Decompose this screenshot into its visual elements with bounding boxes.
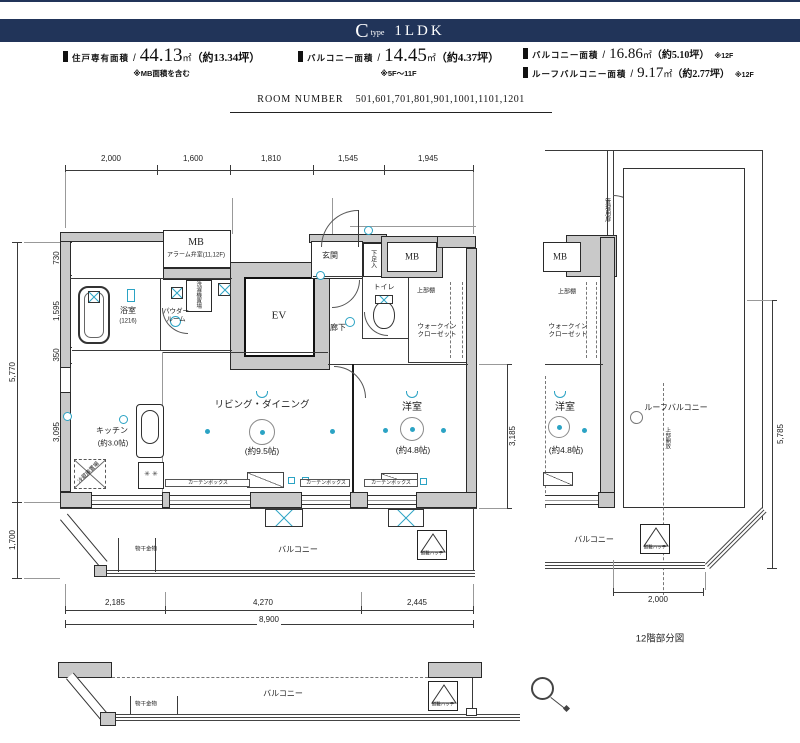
window: [92, 495, 162, 505]
dimension-tick: [65, 606, 66, 614]
dim-top-1945: 1,945: [418, 154, 438, 164]
dimension-tick: [473, 620, 474, 628]
label-living-size: (約9.5帖): [245, 446, 279, 456]
wall-segment: [428, 662, 482, 678]
dim-left-3095: 3,095: [52, 422, 62, 442]
extension-line: [24, 242, 60, 243]
shower-icon: [127, 289, 135, 302]
window: [545, 495, 598, 505]
toilet: [373, 301, 395, 329]
dimension-tick: [767, 568, 777, 569]
tv-board: [247, 472, 284, 488]
dimension-tick: [384, 165, 385, 175]
label-genkan: 玄関: [322, 251, 338, 261]
wall-segment: [60, 492, 92, 508]
balcony-railing: [116, 714, 520, 721]
dimension-line: [65, 610, 473, 611]
ceiling-light-symbol: [400, 417, 424, 441]
wall-fixture-icon: [63, 412, 72, 421]
ac-unit-box: [388, 509, 424, 527]
label-hatch-1: 避難ハッチ: [421, 550, 444, 555]
label-wic-1: ウォークイン クローゼット: [418, 323, 457, 339]
window: [60, 368, 71, 392]
intercom-icon: [364, 226, 373, 235]
dimension-tick: [12, 242, 22, 243]
north-arrow-head: [563, 705, 570, 712]
wall-segment: [437, 236, 476, 248]
balcony-railing: [545, 562, 705, 569]
label-wic-2: ウォークイン クローゼット: [549, 323, 588, 339]
label-toilet: トイレ: [374, 284, 395, 292]
label-mb-right: MB: [405, 252, 419, 263]
label-mb-rightplan: MB: [553, 252, 567, 263]
dim-top-1600: 1,600: [183, 154, 203, 164]
label-curtain-box-1: カーテンボックス: [188, 480, 228, 486]
dim-bottom-2185: 2,185: [105, 598, 125, 608]
ceiling-light-symbol: [548, 416, 570, 438]
common-corridor-line: [232, 198, 233, 234]
extension-line: [479, 364, 507, 365]
dim-left-350: 350: [52, 348, 62, 361]
dimension-tick: [12, 502, 22, 503]
floorplan-page: Ctype1LDK 住戸専有面積/44.13㎡（約13.34坪） ※MB面積を含…: [0, 0, 800, 743]
laundry-pole-post: [118, 538, 119, 572]
dim-left-5770: 5,770: [8, 362, 18, 382]
balcony-side-line: [473, 508, 474, 574]
plan-type-banner: Ctype1LDK: [0, 19, 800, 42]
dim-bottom-8900: 8,900: [257, 615, 281, 625]
dimension-tick: [12, 578, 22, 579]
dimension-tick: [361, 606, 362, 614]
kitchen-light-icon: [119, 415, 128, 424]
building-outline: [545, 150, 762, 151]
area-balcony-note: ※5F～11F: [298, 68, 499, 79]
outlet-box: [420, 478, 427, 485]
laundry-pole-post: [155, 538, 156, 572]
dimension-line: [65, 170, 473, 171]
label-powder-room: パウダー ルーム: [163, 308, 189, 324]
wall-segment: [60, 232, 164, 242]
label-roof-balcony: ルーフバルコニー: [644, 403, 707, 413]
area-summary-row: 住戸専有面積/44.13㎡（約13.34坪） ※MB面積を含む バルコニー面積/…: [0, 45, 800, 89]
label-curtain-box-3: カーテンボックス: [371, 480, 411, 486]
area-bullet-icon: [63, 51, 68, 62]
door-leaf: [358, 210, 359, 247]
top-border-line: [0, 0, 800, 2]
label-kitchen-size: (約3.0帖): [98, 439, 128, 448]
roof-drain-symbol: [630, 411, 643, 424]
label-balcony-main: バルコニー: [278, 545, 318, 555]
label-bedroom-2-size: (約4.8帖): [549, 445, 583, 455]
balcony-railing-diagonal: [705, 507, 767, 569]
interior-wall-line: [160, 278, 161, 350]
ac-unit-box: [265, 509, 303, 527]
wall-line: [607, 150, 608, 237]
room-number-label: ROOM NUMBER: [257, 94, 343, 105]
label-living-dining: リビング・ダイニング: [214, 399, 309, 410]
parapet-end-block: [100, 712, 116, 726]
cabinet-icon: [171, 287, 183, 299]
interior-wall-line: [72, 350, 232, 351]
downlight-dot: [582, 428, 587, 433]
label-shelf-1: 上部棚: [417, 288, 435, 295]
label-kitchen: キッチン: [96, 426, 128, 436]
parapet-end-block: [94, 565, 107, 577]
dim-top-1810: 1,810: [261, 154, 281, 164]
label-laundry: 洗濯機置場: [195, 281, 202, 309]
label-hatch-3: 避難ハッチ: [432, 701, 455, 706]
window: [302, 495, 350, 505]
closet-hanger-dashed-line: [586, 282, 587, 358]
stove-burner-icons: ✳ ✳: [144, 471, 158, 479]
downlight-dot: [383, 428, 388, 433]
label-caption-12f: 12階部分図: [636, 633, 685, 644]
label-bedroom-2: 洋室: [555, 402, 575, 414]
detector-symbol: [406, 391, 418, 398]
label-bedroom: 洋室: [402, 402, 422, 414]
dimension-tick: [313, 165, 314, 175]
dimension-tick: [613, 588, 614, 596]
label-balcony-bottom: バルコニー: [263, 689, 303, 699]
label-monohoshi-2: 物干金物: [135, 702, 157, 709]
counter-board: [543, 472, 573, 486]
boundary-dashdot-line: [663, 383, 664, 605]
area-bullet-icon: [523, 48, 528, 59]
label-shoe-box: 下足入: [368, 250, 375, 268]
dim-bottom-4270: 4,270: [253, 598, 273, 608]
plan-ldk: 1LDK: [394, 23, 444, 39]
label-bedroom-size: (約4.8帖): [396, 445, 430, 455]
light-symbol: [316, 271, 325, 280]
extension-line: [747, 300, 772, 301]
extension-line: [65, 584, 66, 608]
detector-symbol: [554, 391, 566, 398]
wall-segment: [250, 492, 302, 508]
area-roof-balcony: ルーフバルコニー面積/9.17㎡（約2.77坪）※12F: [523, 64, 754, 82]
extension-line: [473, 584, 474, 608]
downlight-dot: [205, 429, 210, 434]
door-arc: [334, 366, 366, 398]
area-balcony-12f: バルコニー面積/16.86㎡（約5.10坪）※12F: [523, 45, 733, 63]
door-arc: [321, 210, 358, 247]
label-shelf-2: 上部棚: [558, 289, 576, 296]
closet-hanger-dashed-line: [450, 282, 451, 358]
label-open-above: 上部開放: [664, 427, 671, 449]
wall-segment: [600, 237, 615, 508]
interior-wall-line: [362, 338, 408, 339]
dim-right-3185: 3,185: [508, 426, 518, 446]
kitchen-sink: [141, 410, 159, 444]
dim-left-730: 730: [52, 251, 62, 264]
extension-line: [479, 508, 507, 509]
dim-left-1700: 1,700: [8, 530, 18, 550]
label-corridor: 廊下: [330, 323, 346, 333]
label-monohoshi-1: 物干金物: [135, 547, 157, 554]
label-kanri-door: 管理用扉: [602, 198, 609, 222]
dimension-line: [772, 300, 773, 568]
dim-rightplan-5785: 5,785: [776, 424, 786, 444]
storage-icon: [218, 283, 231, 296]
dimension-tick: [157, 165, 158, 175]
closet-hanger-dashed-line: [462, 282, 463, 358]
dimension-line: [613, 592, 703, 593]
laundry-pole-post: [130, 696, 131, 714]
interior-wall-line: [163, 352, 328, 353]
dimension-tick: [65, 620, 66, 628]
roof-balcony-area: [623, 168, 745, 508]
label-mb-alarm: MB: [188, 237, 204, 249]
area-bullet-icon: [523, 67, 528, 78]
ceiling-light-symbol: [249, 419, 275, 445]
label-balcony-rightplan: バルコニー: [574, 535, 614, 545]
room-number-values: 501,601,701,801,901,1001,1101,1201: [356, 94, 525, 105]
area-balcony: バルコニー面積/14.45㎡（約4.37坪） ※5F～11F: [298, 45, 499, 79]
wall-segment: [416, 492, 477, 508]
label-bath: 浴室: [120, 306, 136, 316]
extension-line: [613, 560, 614, 590]
extension-line: [705, 572, 706, 590]
balcony-parapet-diagonal: [60, 514, 108, 568]
toilet-tank-icon: [375, 295, 393, 304]
wall-segment: [598, 492, 615, 508]
plan-cut-dashed-line: [545, 376, 546, 508]
dimension-tick: [703, 588, 704, 596]
extension-line: [24, 578, 60, 579]
drain-box: [466, 708, 477, 716]
dimension-tick: [473, 606, 474, 614]
downlight-dot: [441, 428, 446, 433]
drain-pipe: [472, 678, 473, 710]
interior-wall-line: [70, 278, 232, 279]
dim-top-2000: 2,000: [101, 154, 121, 164]
window: [368, 495, 416, 505]
wall-segment: [466, 248, 477, 508]
laundry-pole-post: [177, 696, 178, 714]
dim-bottom-2445: 2,445: [407, 598, 427, 608]
mb-alarm-room: [163, 230, 231, 268]
extension-line: [65, 172, 66, 228]
wall-segment: [350, 492, 368, 508]
area-unit-note: ※MB面積を含む: [63, 68, 260, 79]
outlet-box: [288, 477, 295, 484]
wall-segment: [58, 662, 112, 678]
extension-line: [24, 502, 60, 503]
dimension-line: [17, 242, 18, 578]
interior-wall-line: [362, 278, 363, 338]
downlight-dot: [330, 429, 335, 434]
interior-wall-line: [328, 364, 468, 365]
detector-symbol: [256, 391, 268, 398]
label-hatch-2: 避難ハッチ: [644, 544, 667, 549]
dim-top-1545: 1,545: [338, 154, 358, 164]
dim-left-1595: 1,595: [52, 301, 62, 321]
mirror-cabinet-icon: [88, 291, 100, 303]
wall-segment: [162, 492, 170, 508]
room-number-row: ROOM NUMBER501,601,701,801,901,1001,1101…: [230, 89, 552, 113]
type-word: type: [371, 28, 385, 37]
dimension-tick: [230, 165, 231, 175]
interior-wall-line: [408, 362, 466, 363]
label-curtain-box-2: カーテンボックス: [306, 480, 346, 486]
closet-hanger-dashed-line: [596, 282, 597, 358]
extension-line: [473, 172, 474, 234]
type-letter: C: [355, 20, 368, 42]
label-elevator: EV: [272, 309, 287, 322]
building-outline: [762, 150, 763, 520]
light-symbol: [345, 317, 355, 327]
dim-rightplan-2000: 2,000: [646, 595, 670, 605]
interior-wall-line: [408, 278, 409, 362]
balcony-boundary-dashed: [112, 677, 428, 678]
dimension-tick: [165, 606, 166, 614]
label-bath-size: (1216): [119, 318, 136, 325]
interior-wall-line: [545, 364, 603, 365]
window: [170, 495, 250, 505]
area-unit: 住戸専有面積/44.13㎡（約13.34坪） ※MB面積を含む: [63, 45, 260, 79]
area-bullet-icon: [298, 51, 303, 62]
label-mb-alarm-sub: アラーム弁室(11,12F): [167, 252, 225, 259]
